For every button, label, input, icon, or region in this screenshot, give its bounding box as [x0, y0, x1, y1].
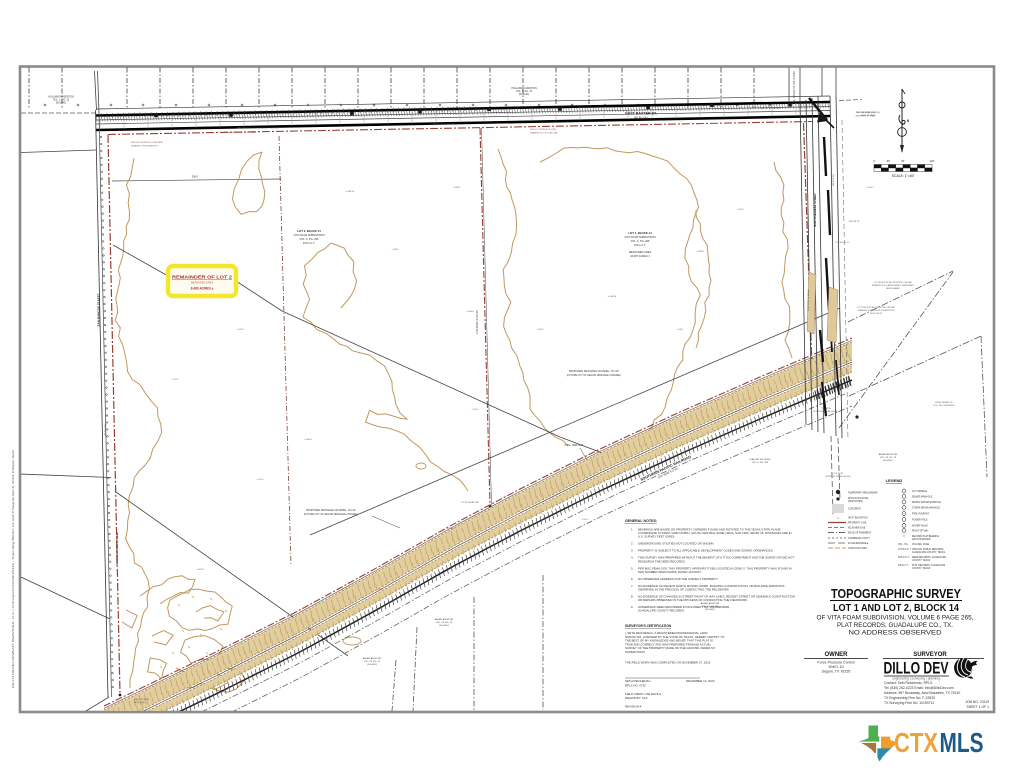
svg-text:x 547.8: x 547.8 — [237, 329, 245, 331]
svg-text:SURVEYOR: SURVEYOR — [913, 652, 947, 658]
svg-text:3.: 3. — [631, 549, 634, 553]
svg-text:x 547.2: x 547.2 — [172, 379, 180, 381]
svg-text:STORM DRAIN MANHOLE: STORM DRAIN MANHOLE — [912, 507, 941, 510]
svg-text:x 550.3: x 550.3 — [737, 209, 745, 211]
svg-text:(50'x140'): (50'x140') — [439, 625, 449, 627]
svg-text:(STAMPED 'VITA FOAM 1997'): (STAMPED 'VITA FOAM 1997') — [131, 145, 159, 148]
svg-text:GENERAL NOTES:: GENERAL NOTES: — [625, 519, 657, 523]
svg-text:LOT 1, BLOCK 14: LOT 1, BLOCK 14 — [628, 231, 652, 235]
svg-text:ASHBY ADDITION: ASHBY ADDITION — [435, 618, 454, 621]
svg-text:Seguin, TX 78155: Seguin, TX 78155 — [822, 670, 851, 674]
svg-text:9.: 9. — [631, 605, 634, 609]
svg-text:MEASURED AREA: MEASURED AREA — [191, 281, 214, 285]
svg-text:VITA FOAM SUBDIVISION: VITA FOAM SUBDIVISION — [624, 235, 655, 239]
svg-text:x 549.7: x 549.7 — [677, 329, 685, 331]
svg-text:TX Engineering Firm No. F-2283: TX Engineering Firm No. F-22833 — [884, 696, 935, 700]
svg-text:16.087 ACRES ±: 16.087 ACRES ± — [630, 254, 650, 258]
svg-text:(PER NOTES): (PER NOTES) — [848, 501, 863, 503]
svg-text:CONCRETE: CONCRETE — [848, 509, 861, 511]
svg-text:S 89° 51' 54" E 1327.51': S 89° 51' 54" E 1327.51' — [431, 124, 455, 126]
svg-text:TEMPORARY BENCHMARK: TEMPORARY BENCHMARK — [848, 492, 878, 495]
svg-text:FND 1/2" IRON ROD (CM): FND 1/2" IRON ROD (CM) — [856, 112, 880, 114]
svg-text:FND 5/8" IR: FND 5/8" IR — [849, 221, 860, 223]
svg-text:DECEMBER 12, 2023: DECEMBER 12, 2023 — [686, 679, 715, 683]
svg-text:SAN MARCOS STREET: SAN MARCOS STREET — [97, 293, 101, 326]
svg-text:SUPERVISION.: SUPERVISION. — [625, 650, 646, 654]
svg-text:x 549.1: x 549.1 — [453, 187, 461, 189]
svg-text:(50'x140'): (50'x140') — [56, 102, 67, 105]
svg-text:MAP NUMBER 48187C0245F, DATED: MAP NUMBER 48187C0245F, DATED 11/2/2007. — [638, 570, 702, 574]
svg-text:CTX: CTX — [894, 727, 938, 758]
svg-text:engineering | surveying | plan: engineering | surveying | planning — [892, 677, 940, 681]
svg-text:RESEARCH THE DEED RECORDS.: RESEARCH THE DEED RECORDS. — [638, 559, 686, 563]
svg-text:FLOWLINE/SWALE: FLOWLINE/SWALE — [848, 542, 869, 545]
svg-text:NO OBSERVED ADDRESS FOR THE SU: NO OBSERVED ADDRESS FOR THE SUBJECT PROP… — [638, 577, 718, 581]
svg-text:STAMPED 'KCI & ASSOCIATES' TEM: STAMPED 'KCI & ASSOCIATES' TEMPORARY — [872, 284, 915, 287]
svg-text:SPOT ELEVATION: SPOT ELEVATION — [848, 517, 868, 520]
svg-text:PROPERTY IS SUBJECT TO ALL APP: PROPERTY IS SUBJECT TO ALL APPLICABLE DE… — [638, 549, 774, 553]
svg-text:Contact: Seth Reichenau, RPLS: Contact: Seth Reichenau, RPLS — [884, 681, 933, 685]
svg-text:Tel: (830) 262-0223 Email: I: Tel: (830) 262-0223 Email: Info@DilloDev… — [884, 686, 954, 690]
svg-text:DOC. NO. 2008002599: DOC. NO. 2008002599 — [934, 405, 956, 407]
svg-text:REMAINDER OF 100' x 140' TRACT: REMAINDER OF 100' x 140' TRACT — [224, 131, 257, 134]
svg-text:PROPOSED DRAINAGE CHANNEL, R.O: PROPOSED DRAINAGE CHANNEL, R.O.W. — [306, 509, 356, 512]
svg-text:LOT 1 AND LOT 2, BLOCK 14: LOT 1 AND LOT 2, BLOCK 14 — [833, 602, 959, 614]
svg-text:30': 30' — [887, 159, 891, 163]
svg-text:x 549.46: x 549.46 — [608, 296, 617, 298]
svg-text:Address: 967 Broadway, New Bra: Address: 967 Broadway, New Braunfels, TX… — [884, 691, 960, 695]
svg-text:ASHBY ADDITION: ASHBY ADDITION — [879, 453, 898, 456]
svg-text:TOPOGRAPHIC SURVEY: TOPOGRAPHIC SURVEY — [831, 586, 961, 601]
svg-text:FND 1/2" IRON: FND 1/2" IRON — [134, 699, 149, 701]
svg-text:4.: 4. — [631, 556, 634, 560]
svg-text:x 549.2: x 549.2 — [537, 329, 545, 331]
svg-text:JOB NO. 23119: JOB NO. 23119 — [965, 700, 989, 704]
svg-text:SOUTH HEIDEKE: SOUTH HEIDEKE — [820, 386, 822, 404]
svg-text:WESTSIDE 75, 100.0' (CALLED 1: WESTSIDE 75, 100.0' (CALLED 100'x140') — [237, 127, 279, 130]
svg-text:ELEV 549.28: ELEV 549.28 — [870, 313, 883, 315]
svg-text:CUT SPINDLE: CUT SPINDLE — [912, 491, 928, 493]
svg-text:x 550.1: x 550.1 — [866, 187, 874, 189]
svg-text:(FUTURE CITY OF SEGUIN DRAINAG: (FUTURE CITY OF SEGUIN DRAINAGE CHANNEL) — [304, 513, 358, 516]
svg-text:x 549.0: x 549.0 — [472, 409, 480, 411]
svg-text:NORTH HEIDEKE STREET: NORTH HEIDEKE STREET — [813, 193, 817, 227]
svg-text:VOL. 29, PG. 79: VOL. 29, PG. 79 — [436, 622, 453, 624]
svg-text:3040 I-10: 3040 I-10 — [828, 665, 843, 669]
svg-text:REMAINDER OF LOT 2: REMAINDER OF LOT 2 — [172, 275, 233, 280]
svg-text:VOLUME, PAGE: VOLUME, PAGE — [912, 543, 930, 546]
svg-text:U.S. SURVEY FEET (GRID).: U.S. SURVEY FEET (GRID). — [638, 535, 675, 539]
svg-text:DRAWN BY: SLS: DRAWN BY: SLS — [625, 696, 647, 700]
svg-text:x 550.4: x 550.4 — [582, 519, 590, 521]
svg-text:OWNER: OWNER — [825, 652, 849, 658]
svg-text:ROD (CM): ROD (CM) — [134, 702, 145, 704]
svg-text:AND DISTANCES: AND DISTANCES — [912, 538, 931, 541]
svg-text:THE FIELD WORK WAS COMPLETED O: THE FIELD WORK WAS COMPLETED ON NOVEMBER… — [625, 661, 711, 665]
svg-text:1.: 1. — [631, 528, 634, 532]
svg-text:PROPOSED DRAINAGE CHANNEL, R.O: PROPOSED DRAINAGE CHANNEL, R.O.W. — [569, 370, 619, 373]
svg-text:PROPERTY LINE: PROPERTY LINE — [848, 523, 867, 525]
svg-text:x 547.6: x 547.6 — [257, 479, 265, 481]
svg-text:6.: 6. — [631, 577, 634, 581]
svg-text:5' B.L. PER PLAT: 5' B.L. PER PLAT — [565, 444, 584, 447]
svg-text:VITA FOAM SUBDIVISION: VITA FOAM SUBDIVISION — [293, 233, 324, 237]
svg-text:OBSERVED IN THE PROCESS OF CON: OBSERVED IN THE PROCESS OF CONDUCTING TH… — [638, 588, 730, 592]
svg-text:(CALLED 100' ROW): (CALLED 100' ROW) — [750, 458, 771, 461]
svg-text:Force Pressure Control: Force Pressure Control — [817, 661, 854, 665]
svg-text:x 548.6: x 548.6 — [466, 311, 474, 313]
svg-text:(60' R.O.W.): (60' R.O.W.) — [105, 424, 107, 436]
svg-text:PLAT RECORDS, GUADALUPE: PLAT RECORDS, GUADALUPE — [912, 564, 946, 567]
svg-text:P.R.G.C.T.: P.R.G.C.T. — [898, 565, 909, 567]
svg-text:60': 60' — [901, 159, 905, 163]
svg-text:( ): ( ) — [903, 536, 905, 538]
svg-text:(FUTURE CITY OF SEGUIN DRAINAG: (FUTURE CITY OF SEGUIN DRAINAGE CHANNEL) — [567, 374, 621, 377]
svg-text:598.8': 598.8' — [192, 176, 199, 179]
svg-text:EAST BAXTER ST.: EAST BAXTER ST. — [625, 112, 657, 116]
svg-text:EDGE OF PAVEMENT: EDGE OF PAVEMENT — [848, 532, 872, 535]
svg-text:REVISION #: REVISION # — [625, 705, 642, 709]
svg-text:x 549.8: x 549.8 — [696, 251, 704, 253]
svg-text:FND 1/2" IRON ROD: FND 1/2" IRON ROD — [760, 108, 781, 110]
svg-text:ADJOINER LINE: ADJOINER LINE — [848, 527, 866, 530]
svg-text:(60' R.O.W.): (60' R.O.W.) — [634, 116, 648, 120]
svg-text:RIGHT OF WAY: RIGHT OF WAY — [912, 530, 929, 533]
svg-text:5.: 5. — [631, 566, 634, 570]
svg-text:N 00°12'05" W 585.61': N 00°12'05" W 585.61' — [808, 288, 810, 311]
svg-text:SHEET 1 OF 1: SHEET 1 OF 1 — [966, 705, 989, 709]
svg-text:x 548.20: x 548.20 — [346, 191, 355, 193]
svg-text:VOL. 23, PG. 15: VOL. 23, PG. 15 — [364, 661, 381, 663]
svg-text:NO ADDRESS OBSERVED: NO ADDRESS OBSERVED — [849, 630, 942, 637]
svg-text:SETH REICHENAU: SETH REICHENAU — [625, 679, 651, 683]
svg-text:BENCH MARK: BENCH MARK — [886, 287, 900, 290]
svg-text:(50'x140'): (50'x140') — [883, 460, 893, 462]
svg-text:(50'x140'): (50'x140') — [705, 609, 715, 611]
svg-text:x 550.2: x 550.2 — [447, 528, 455, 530]
svg-text:COUNTY, TEXAS: COUNTY, TEXAS — [912, 567, 931, 570]
svg-text:STEEL SEWER LID: STEEL SEWER LID — [935, 402, 953, 404]
svg-text:STAMPED 'KCI' ROLLED CAP: STAMPED 'KCI' ROLLED CAP — [530, 132, 558, 135]
svg-text:D.R.G.C.T.: D.R.G.C.T. — [898, 557, 909, 559]
svg-text:OVERHEAD UTILITY: OVERHEAD UTILITY — [848, 537, 871, 540]
svg-text:(50'x140'): (50'x140') — [367, 664, 377, 666]
svg-text:STAMPED 'KCI' ROLLED 5/8' ADOP: STAMPED 'KCI' ROLLED 5/8' ADOPTED — [858, 309, 895, 312]
svg-text:VOL. 6, PG. 265: VOL. 6, PG. 265 — [752, 462, 769, 464]
svg-text:OF VITA FOAM SUBDIVISION, VOL: OF VITA FOAM SUBDIVISION, VOLUME 6 PAGE … — [817, 615, 974, 622]
svg-text:(60' R.O.W.): (60' R.O.W.) — [833, 174, 835, 186]
svg-text:RPLS NO. 6732: RPLS NO. 6732 — [625, 684, 646, 688]
svg-text:1/2" IR W/CAP FND: 1/2" IR W/CAP FND — [461, 501, 479, 504]
svg-text:VOL. 29, PG. 79: VOL. 29, PG. 79 — [880, 457, 897, 459]
svg-text:SURVEYOR'S CERTIFICATION: SURVEYOR'S CERTIFICATION — [625, 624, 672, 628]
svg-text:SEWER MANHOLE: SEWER MANHOLE — [912, 496, 933, 499]
svg-text:POWER POLE: POWER POLE — [912, 520, 928, 522]
svg-text:BENT AT BASE: BENT AT BASE — [861, 114, 876, 117]
svg-text:x 548.3: x 548.3 — [304, 439, 312, 441]
svg-text:120': 120' — [930, 159, 935, 163]
svg-text:VOL. 6, PG. 265: VOL. 6, PG. 265 — [299, 237, 319, 241]
svg-text:VOL. 6, PG. 265: VOL. 6, PG. 265 — [630, 239, 650, 243]
svg-text:UNDERGROUND UTILITIES NOT LOCA: UNDERGROUND UTILITIES NOT LOCATED OR SHO… — [638, 542, 715, 546]
svg-text:1/2" IRON ROD SET WITH YELLOW: 1/2" IRON ROD SET WITH YELLOW CAP — [874, 281, 912, 284]
svg-text:O.P.R.G.C.T.: O.P.R.G.C.T. — [898, 549, 911, 551]
svg-text:ASHBY ADDITION: ASHBY ADDITION — [363, 657, 382, 660]
svg-text:2.: 2. — [631, 542, 634, 546]
svg-text:DILLO DEV: DILLO DEV — [884, 660, 949, 678]
svg-text:FND 1/2" IRON ROD (CM) BENT: FND 1/2" IRON ROD (CM) BENT — [131, 142, 164, 144]
svg-text:LOT 2, BLOCK 14: LOT 2, BLOCK 14 — [297, 229, 321, 233]
svg-text:x 547.9: x 547.9 — [196, 569, 204, 571]
svg-text:IRON ROD FOUND: IRON ROD FOUND — [848, 498, 869, 500]
svg-text:P.R.G.C.T.: P.R.G.C.T. — [634, 243, 646, 247]
svg-text:NORTH FL 549.96 (55x140): NORTH FL 549.96 (55x140) — [825, 476, 850, 478]
svg-text:GUADALUPE COUNTY RECORDS.: GUADALUPE COUNTY RECORDS. — [638, 609, 685, 613]
svg-text:8.: 8. — [631, 595, 634, 599]
svg-text:FND 1/2" IRON ROD (CM): FND 1/2" IRON ROD (CM) — [530, 129, 556, 131]
svg-text:RECORD PLAT BEARING: RECORD PLAT BEARING — [912, 535, 939, 538]
svg-text:WATER VALVE: WATER VALVE — [912, 525, 928, 528]
svg-text:x 548.9: x 548.9 — [392, 249, 400, 251]
svg-text:P.R.G.C.T.: P.R.G.C.T. — [303, 241, 315, 245]
svg-text:FIRE HYDRANT: FIRE HYDRANT — [912, 513, 930, 516]
svg-text:DILLO DEVELOPMENT SERVICES, LL: DILLO DEVELOPMENT SERVICES, LLC | N:\Pro… — [11, 450, 15, 688]
svg-text:OFFICIAL PUBLIC RECORDS,: OFFICIAL PUBLIC RECORDS, — [912, 548, 944, 551]
svg-text:S 00°08'06" W 377.05': S 00°08'06" W 377.05' — [476, 310, 479, 334]
svg-text:TX Surveying Firm No. 10194711: TX Surveying Firm No. 10194711 — [884, 701, 934, 705]
svg-text:WASTE WATER MANHOLE: WASTE WATER MANHOLE — [912, 501, 941, 504]
svg-text:COUNTY, TEXAS: COUNTY, TEXAS — [912, 559, 931, 562]
svg-text:CONTOUR LINES: CONTOUR LINES — [848, 548, 867, 550]
svg-text:OR REPAIRS OBSERVED IN THE PRO: OR REPAIRS OBSERVED IN THE PROCESS OF CO… — [638, 598, 748, 602]
svg-text:LEGEND: LEGEND — [886, 478, 903, 483]
svg-text:8.469 ACRES ±: 8.469 ACRES ± — [191, 287, 214, 291]
svg-text:MLS: MLS — [940, 727, 984, 758]
svg-text:x 548.1: x 548.1 — [377, 589, 385, 591]
svg-text:GUADALUPE COUNTY, TEXAS: GUADALUPE COUNTY, TEXAS — [912, 551, 945, 554]
svg-text:PLAT RECORDS, GUADALUPE CO., T: PLAT RECORDS, GUADALUPE CO., TX. — [837, 622, 953, 629]
svg-text:VOL., PG.: VOL., PG. — [898, 544, 909, 546]
svg-text:(50'x140'): (50'x140') — [519, 93, 530, 96]
svg-text:1/2" IRON ROD SET WITH YELLOW: 1/2" IRON ROD SET WITH YELLOW CAP — [857, 306, 895, 309]
svg-text:TOP NOW: TOP NOW — [833, 473, 843, 475]
svg-text:7.: 7. — [631, 584, 634, 588]
svg-text:LOT 16/LOT 15: LOT 16/LOT 15 — [835, 242, 850, 244]
svg-text:DEED RECORDS, GUADALUPE: DEED RECORDS, GUADALUPE — [912, 556, 946, 559]
svg-text:MEASURED AREA: MEASURED AREA — [629, 250, 652, 254]
svg-text:SCALE: 1"=60': SCALE: 1"=60' — [892, 174, 915, 178]
